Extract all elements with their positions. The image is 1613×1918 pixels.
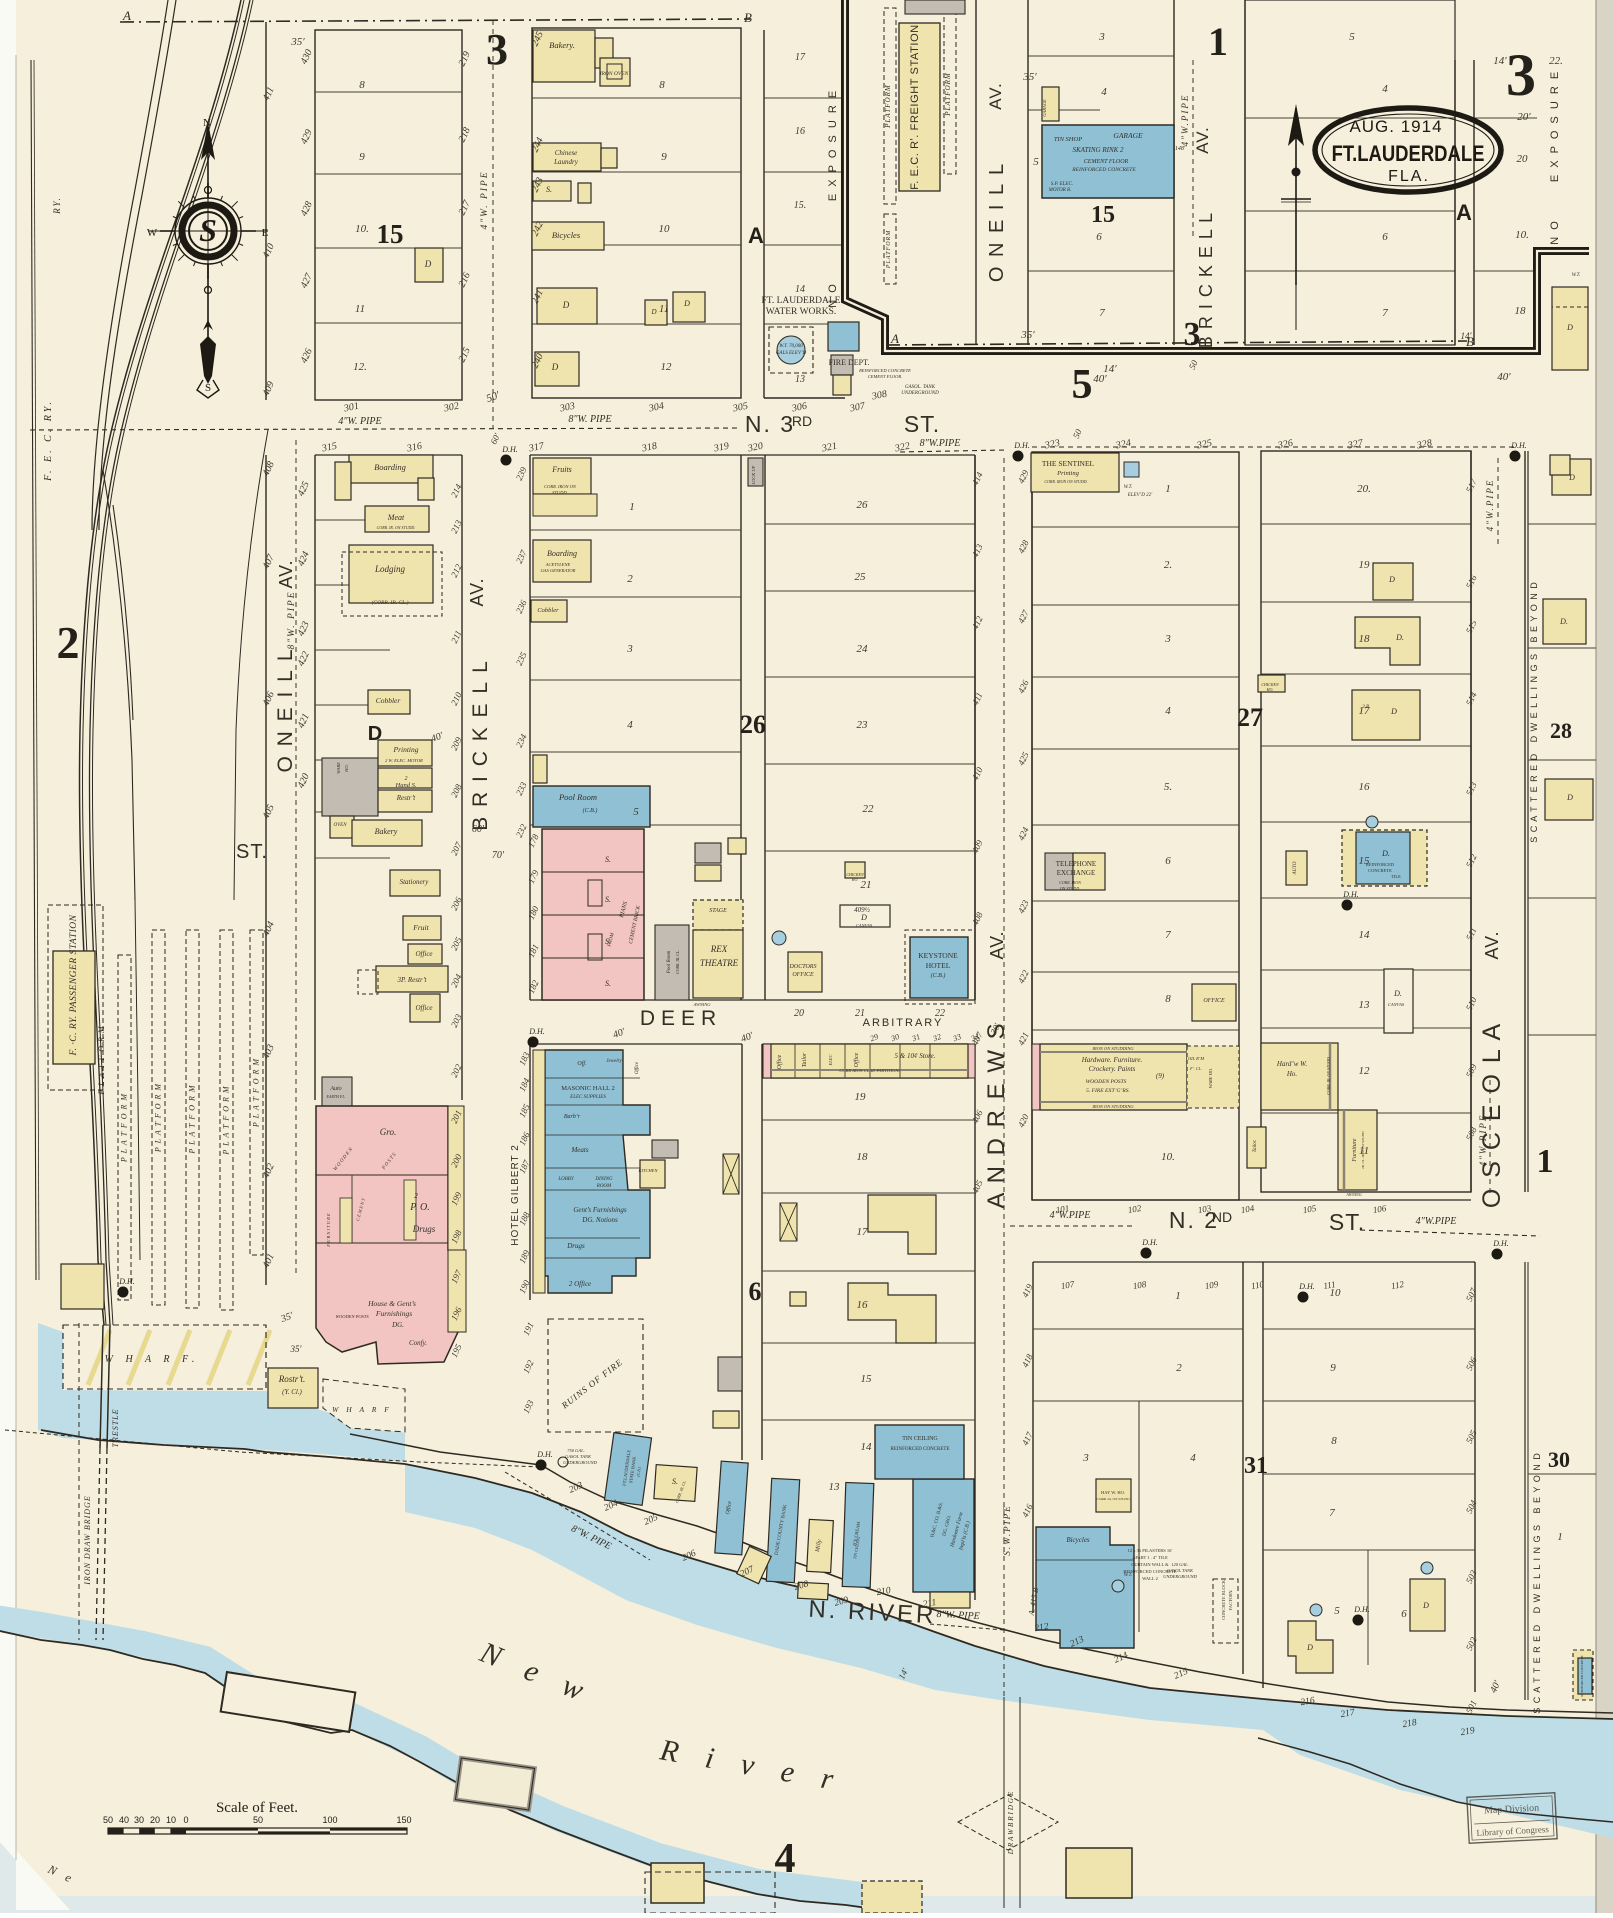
svg-text:Gro.: Gro. xyxy=(380,1127,396,1137)
svg-text:Drugs: Drugs xyxy=(566,1242,585,1250)
svg-text:Gent’s Furnishings: Gent’s Furnishings xyxy=(573,1206,627,1214)
svg-text:P L A T F O R M: P L A T F O R M xyxy=(154,1083,163,1154)
svg-text:10.: 10. xyxy=(1515,229,1529,241)
svg-text:10: 10 xyxy=(1330,1287,1342,1299)
svg-text:5: 5 xyxy=(1072,362,1093,408)
svg-text:3: 3 xyxy=(626,643,633,655)
svg-text:Drugs: Drugs xyxy=(412,1224,436,1234)
svg-text:D.H.: D.H. xyxy=(528,1027,545,1036)
svg-text:Tailor: Tailor xyxy=(802,1052,808,1067)
svg-text:F. E. C. RY.: F. E. C. RY. xyxy=(43,399,54,482)
svg-text:ST.: ST. xyxy=(904,411,940,437)
svg-text:10: 10 xyxy=(166,1815,176,1825)
svg-text:20′: 20′ xyxy=(1517,111,1531,123)
svg-text:FACTORY.: FACTORY. xyxy=(1228,1589,1233,1610)
svg-text:Hard’w W.: Hard’w W. xyxy=(1276,1060,1307,1068)
svg-text:D.H.: D.H. xyxy=(1510,441,1527,450)
svg-text:18: 18 xyxy=(1359,633,1371,645)
svg-text:GASOL TANK: GASOL TANK xyxy=(1167,1568,1194,1573)
svg-text:DG.: DG. xyxy=(391,1321,404,1329)
svg-text:PLATFORM: PLATFORM xyxy=(944,72,952,117)
svg-text:Office: Office xyxy=(415,1004,432,1012)
svg-text:E X P O S U R E: E X P O S U R E xyxy=(1549,70,1561,182)
svg-text:5: 5 xyxy=(1033,156,1039,168)
svg-text:8″W. PIPE: 8″W. PIPE xyxy=(287,590,297,649)
svg-text:Office: Office xyxy=(415,950,432,958)
svg-text:4: 4 xyxy=(1382,83,1388,95)
svg-text:D: D xyxy=(1566,793,1573,802)
svg-text:Bicycles: Bicycles xyxy=(1066,1536,1090,1544)
svg-text:F. ·C. RY. PASSENGER STATION: F. ·C. RY. PASSENGER STATION xyxy=(69,914,79,1056)
svg-text:CORR IRON CLAD PARTITION: CORR IRON CLAD PARTITIONS xyxy=(839,1068,901,1073)
svg-text:22.: 22. xyxy=(1549,55,1563,67)
svg-text:1: 1 xyxy=(1208,19,1228,64)
svg-text:ROOM: ROOM xyxy=(596,1184,612,1189)
svg-text:WARE: WARE xyxy=(336,762,341,774)
svg-text:13: 13 xyxy=(829,1481,841,1493)
svg-text:20: 20 xyxy=(1517,153,1529,165)
svg-text:D: D xyxy=(1390,707,1397,716)
svg-text:AUG. 1914: AUG. 1914 xyxy=(1349,117,1442,136)
svg-text:15: 15 xyxy=(377,219,404,249)
svg-text:D: D xyxy=(424,259,432,269)
svg-text:D.H.: D.H. xyxy=(1342,890,1359,899)
svg-text:RD: RD xyxy=(792,413,812,429)
svg-text:8: 8 xyxy=(1165,993,1171,1005)
svg-text:CEMENT FLOOR: CEMENT FLOOR xyxy=(1084,159,1129,165)
svg-text:Hand S.: Hand S. xyxy=(395,782,417,789)
svg-text:STUDD.: STUDD. xyxy=(552,490,568,495)
svg-text:6: 6 xyxy=(1401,1608,1407,1620)
svg-text:6: 6 xyxy=(749,1277,762,1306)
svg-text:Cobbler: Cobbler xyxy=(376,696,401,705)
svg-text:0: 0 xyxy=(183,1815,188,1825)
svg-text:Pool Room: Pool Room xyxy=(667,950,672,974)
svg-text:OFFICE: OFFICE xyxy=(1203,998,1225,1004)
svg-text:15: 15 xyxy=(861,1373,873,1385)
svg-text:Ho.: Ho. xyxy=(1286,1070,1298,1078)
svg-text:14: 14 xyxy=(795,284,805,295)
svg-text:GASOL. TANK: GASOL. TANK xyxy=(905,385,936,390)
svg-text:ST.: ST. xyxy=(1329,1209,1365,1235)
svg-text:2.: 2. xyxy=(1164,559,1172,571)
svg-text:P L A T F O R M: P L A T F O R M xyxy=(97,1025,106,1096)
svg-text:HAY W. HO.: HAY W. HO. xyxy=(1101,1490,1125,1495)
svg-text:40′: 40′ xyxy=(1497,371,1511,383)
svg-text:4: 4 xyxy=(1101,86,1107,98)
svg-text:ELEV’D 22′: ELEV’D 22′ xyxy=(1127,493,1153,498)
svg-text:2: 2 xyxy=(57,617,80,668)
svg-text:14: 14 xyxy=(861,1441,873,1453)
svg-text:B R I C K E L L: B R I C K E L L xyxy=(469,659,492,831)
svg-text:ACETYLENE: ACETYLENE xyxy=(545,562,571,567)
svg-text:REINFORCED: REINFORCED xyxy=(1366,862,1395,867)
svg-text:4: 4 xyxy=(1165,705,1171,717)
svg-text:A: A xyxy=(890,331,899,346)
svg-text:D.: D. xyxy=(1393,989,1402,998)
svg-text:HO.: HO. xyxy=(1266,687,1274,692)
svg-text:D.: D. xyxy=(1381,849,1390,858)
svg-text:Meat: Meat xyxy=(387,513,405,522)
svg-text:UNDERGROUND: UNDERGROUND xyxy=(1163,1574,1197,1579)
svg-text:Rostr’t.: Rostr’t. xyxy=(278,1374,306,1384)
svg-text:WALL 2: WALL 2 xyxy=(1142,1576,1158,1581)
svg-text:(9): (9) xyxy=(1156,1072,1165,1080)
svg-text:EARTH FL.: EARTH FL. xyxy=(325,1094,345,1099)
svg-text:D.H.: D.H. xyxy=(536,1450,553,1459)
svg-text:8: 8 xyxy=(1331,1435,1337,1447)
svg-text:CEMENT FLOOR.: CEMENT FLOOR. xyxy=(868,374,902,379)
svg-text:GASOL TANK: GASOL TANK xyxy=(565,1454,592,1459)
svg-text:35′: 35′ xyxy=(290,36,305,48)
svg-text:Bakery: Bakery xyxy=(375,827,398,836)
svg-text:(Y. Cl.): (Y. Cl.) xyxy=(282,1388,302,1396)
svg-text:D.H.: D.H. xyxy=(501,445,518,454)
svg-text:D.H.: D.H. xyxy=(1492,1239,1509,1248)
svg-text:CANVAS: CANVAS xyxy=(856,923,873,928)
svg-text:ARBITRARY: ARBITRARY xyxy=(863,1017,944,1029)
svg-text:11: 11 xyxy=(659,303,669,315)
svg-text:D.H.: D.H. xyxy=(1353,1605,1370,1614)
svg-text:FT.LAUDERDALE: FT.LAUDERDALE xyxy=(1332,143,1485,167)
svg-text:10: 10 xyxy=(659,223,671,235)
svg-text:HOTEL: HOTEL xyxy=(926,961,951,970)
svg-text:Off.: Off. xyxy=(577,1060,586,1067)
svg-text:31: 31 xyxy=(1244,1453,1268,1479)
svg-text:28: 28 xyxy=(1550,718,1572,743)
svg-text:D.: D. xyxy=(1395,633,1404,642)
svg-text:AV.: AV. xyxy=(986,82,1005,110)
svg-text:D: D xyxy=(1566,323,1573,332)
svg-text:FT. LAUDERDALE: FT. LAUDERDALE xyxy=(762,296,841,306)
svg-text:S.: S. xyxy=(605,895,611,904)
svg-text:P L A T F O R M: P L A T F O R M xyxy=(188,1084,197,1155)
svg-text:120 GAL.: 120 GAL. xyxy=(1171,1562,1189,1567)
svg-text:Printing: Printing xyxy=(1056,470,1079,477)
svg-text:P L A T F O R M: P L A T F O R M xyxy=(252,1058,261,1129)
svg-text:8: 8 xyxy=(659,79,665,91)
svg-text:Pool Room: Pool Room xyxy=(558,792,597,802)
svg-text:6: 6 xyxy=(1165,855,1171,867)
svg-text:TIN CEILING: TIN CEILING xyxy=(902,1436,938,1442)
svg-text:409½: 409½ xyxy=(854,906,871,914)
svg-text:4: 4 xyxy=(775,1836,796,1882)
svg-text:13: 13 xyxy=(1359,999,1371,1011)
svg-text:W.T.: W.T. xyxy=(1572,273,1581,278)
svg-text:D: D xyxy=(1422,1601,1429,1610)
svg-text:CORR. IRON ON: CORR. IRON ON xyxy=(544,484,577,489)
svg-text:148′: 148′ xyxy=(1175,145,1186,152)
svg-text:Lodging: Lodging xyxy=(374,564,406,574)
svg-text:3: 3 xyxy=(486,25,508,74)
svg-text:DEER: DEER xyxy=(640,1007,722,1030)
svg-text:RY.: RY. xyxy=(52,196,62,215)
svg-text:W.T.: W.T. xyxy=(1124,1573,1133,1578)
svg-text:CONCRETE: CONCRETE xyxy=(1368,868,1392,873)
svg-text:AV.: AV. xyxy=(1193,126,1212,154)
svg-text:DRAWBRIDGE: DRAWBRIDGE xyxy=(1007,1790,1015,1855)
svg-text:WOODEN POSTS: WOODEN POSTS xyxy=(335,1314,369,1319)
svg-text:OIL R’M: OIL R’M xyxy=(1188,1056,1205,1061)
svg-text:P L A T F O R M: P L A T F O R M xyxy=(222,1085,231,1156)
svg-text:D: D xyxy=(1306,1643,1313,1652)
svg-text:6: 6 xyxy=(1096,231,1102,243)
svg-text:1: 1 xyxy=(1175,1290,1181,1302)
svg-text:CANVAS: CANVAS xyxy=(1388,1002,1405,1007)
svg-text:AWNING: AWNING xyxy=(1345,1192,1361,1197)
svg-text:100: 100 xyxy=(322,1815,337,1825)
svg-text:Stationery: Stationery xyxy=(400,878,430,886)
svg-text:WATER WORKS.: WATER WORKS. xyxy=(766,307,837,317)
svg-text:D: D xyxy=(860,913,867,922)
svg-text:O N E I L L: O N E I L L xyxy=(986,162,1008,282)
svg-text:S.: S. xyxy=(672,1477,678,1486)
svg-text:W H A R F.: W H A R F. xyxy=(105,1354,200,1365)
svg-text:8: 8 xyxy=(359,79,365,91)
svg-text:W: W xyxy=(147,227,158,239)
svg-text:1: 1 xyxy=(1165,483,1171,495)
svg-text:3P. Restr’t: 3P. Restr’t xyxy=(397,976,428,984)
svg-text:30: 30 xyxy=(134,1815,144,1825)
svg-text:DOCTORS: DOCTORS xyxy=(789,964,817,970)
svg-text:P L A T F O R M: P L A T F O R M xyxy=(120,1093,129,1164)
svg-text:D: D xyxy=(650,308,656,316)
svg-text:TRESTLE: TRESTLE xyxy=(111,1408,120,1447)
svg-text:S C A T T E R E D D W E L L: S C A T T E R E D D W E L L I N G S B E … xyxy=(1532,1452,1542,1713)
svg-text:N O: N O xyxy=(1549,219,1561,245)
svg-text:3: 3 xyxy=(1184,316,1201,353)
svg-text:AWNING: AWNING xyxy=(692,1002,711,1007)
svg-text:4″W.PIPE: 4″W.PIPE xyxy=(1485,479,1495,532)
svg-text:15: 15 xyxy=(1091,202,1115,228)
svg-text:GALS ELEV’D: GALS ELEV’D xyxy=(776,351,807,356)
svg-text:14: 14 xyxy=(1359,929,1371,941)
svg-text:7: 7 xyxy=(1382,307,1388,319)
svg-text:Chinese: Chinese xyxy=(555,149,578,157)
svg-text:F’. CL.: F’. CL. xyxy=(1189,1066,1202,1071)
svg-text:CORR. IR. ON STUDD.: CORR. IR. ON STUDD. xyxy=(377,525,416,530)
svg-text:House & Gent’s: House & Gent’s xyxy=(367,1299,416,1308)
svg-text:Bicycles: Bicycles xyxy=(552,230,581,240)
svg-text:HOTEL GILBERT 2: HOTEL GILBERT 2 xyxy=(510,1144,521,1246)
svg-text:D: D xyxy=(1388,575,1395,584)
svg-text:D.H.: D.H. xyxy=(1141,1238,1158,1247)
svg-text:Barb’r: Barb’r xyxy=(564,1114,581,1120)
svg-text:F. E.C. Rʹ. FREIGHT STATION: F. E.C. Rʹ. FREIGHT STATION xyxy=(909,24,921,190)
svg-text:Jewelry: Jewelry xyxy=(606,1059,622,1064)
svg-text:(C.B.): (C.B.) xyxy=(931,972,946,979)
svg-text:7: 7 xyxy=(1099,307,1105,319)
svg-text:4″W. PIPE: 4″W. PIPE xyxy=(338,416,381,427)
svg-text:Laundry: Laundry xyxy=(553,158,579,166)
svg-text:REINFORCED CONCRETE: REINFORCED CONCRETE xyxy=(1071,167,1136,173)
svg-text:14′: 14′ xyxy=(1493,55,1507,67)
svg-text:MASONIC HALL 2: MASONIC HALL 2 xyxy=(561,1085,615,1092)
svg-text:Boarding: Boarding xyxy=(547,549,577,558)
svg-text:IRON OVEN: IRON OVEN xyxy=(599,71,629,77)
svg-text:B: B xyxy=(744,10,752,25)
svg-text:LOBBY: LOBBY xyxy=(557,1177,575,1182)
svg-text:8″W. PIPE: 8″W. PIPE xyxy=(936,1609,980,1622)
svg-text:1: 1 xyxy=(1537,1143,1554,1180)
svg-text:LOCK UP: LOCK UP xyxy=(751,465,756,485)
svg-text:35′: 35′ xyxy=(1022,71,1037,83)
svg-text:2: 2 xyxy=(627,573,633,585)
svg-text:50: 50 xyxy=(253,1815,263,1825)
svg-text:IRON ON STUDDING: IRON ON STUDDING xyxy=(1091,1046,1134,1051)
svg-text:35′: 35′ xyxy=(290,1344,303,1354)
svg-text:1: 1 xyxy=(1557,1531,1563,1543)
svg-text:REX: REX xyxy=(710,944,728,954)
svg-text:24: 24 xyxy=(857,643,869,655)
svg-text:60′: 60′ xyxy=(472,824,485,835)
svg-text:CORR. IR. CL.: CORR. IR. CL. xyxy=(675,950,680,974)
svg-text:FIRE DEPT.: FIRE DEPT. xyxy=(829,358,870,367)
svg-text:8″W.PIPE: 8″W.PIPE xyxy=(920,438,961,449)
svg-text:6: 6 xyxy=(1382,231,1388,243)
svg-text:17: 17 xyxy=(1359,705,1371,717)
svg-text:TELEPHONE: TELEPHONE xyxy=(1056,860,1096,868)
svg-text:Boarding: Boarding xyxy=(374,462,406,472)
svg-text:9: 9 xyxy=(661,151,667,163)
svg-text:Tailor.: Tailor. xyxy=(1253,1140,1258,1153)
svg-text:19: 19 xyxy=(855,1091,867,1103)
svg-text:26: 26 xyxy=(740,710,766,739)
svg-text:D.H.: D.H. xyxy=(118,1277,135,1286)
svg-text:25: 25 xyxy=(855,571,867,583)
svg-text:DINING: DINING xyxy=(594,1177,613,1182)
svg-text:CORR. IA. ON STUDD: CORR. IA. ON STUDD xyxy=(1097,1497,1130,1501)
svg-text:12 x 36 PILASTERS 16′: 12 x 36 PILASTERS 16′ xyxy=(1128,1548,1173,1553)
svg-text:750 GAL.: 750 GAL. xyxy=(567,1448,585,1453)
svg-text:CORR. IR. ON STUDD: CORR. IR. ON STUDD xyxy=(1326,1057,1331,1095)
svg-text:CORR. IRON: CORR. IRON xyxy=(1059,880,1081,885)
svg-text:21: 21 xyxy=(861,879,872,891)
svg-text:7: 7 xyxy=(1165,929,1171,941)
svg-text:14′: 14′ xyxy=(1103,363,1117,375)
svg-text:12: 12 xyxy=(1359,1065,1371,1077)
svg-text:27: 27 xyxy=(1237,703,1263,732)
svg-text:PLATFORM: PLATFORM xyxy=(886,230,892,269)
svg-text:ON STUDD.: ON STUDD. xyxy=(1060,886,1080,891)
svg-text:S.P. ELEC.: S.P. ELEC. xyxy=(1051,182,1073,187)
svg-text:D: D xyxy=(1568,473,1575,482)
svg-text:S.: S. xyxy=(605,855,611,864)
svg-text:Office: Office xyxy=(635,1061,640,1074)
svg-text:TILE: TILE xyxy=(1391,874,1401,879)
svg-text:OFFICE: OFFICE xyxy=(792,972,814,978)
svg-text:Hardware. Furniture.: Hardware. Furniture. xyxy=(1081,1056,1143,1064)
svg-text:DG. Notions: DG. Notions xyxy=(581,1216,618,1224)
svg-text:EXCHANGE: EXCHANGE xyxy=(1057,869,1096,877)
svg-text:4″W.PIPE: 4″W.PIPE xyxy=(1416,1216,1457,1227)
svg-text:AV.: AV. xyxy=(276,559,296,588)
svg-text:Office: Office xyxy=(853,1052,860,1067)
svg-text:12: 12 xyxy=(661,361,673,373)
svg-text:A: A xyxy=(748,223,764,248)
svg-text:D: D xyxy=(562,300,570,310)
svg-text:16: 16 xyxy=(857,1299,869,1311)
svg-text:IRON DRAW BRIDGE: IRON DRAW BRIDGE xyxy=(83,1495,92,1585)
svg-text:HO.: HO. xyxy=(851,877,859,882)
svg-text:Office: Office xyxy=(776,1054,783,1069)
svg-text:Fruits: Fruits xyxy=(551,465,572,474)
svg-text:O N E I L L: O N E I L L xyxy=(274,647,297,772)
svg-text:IRON ON STUDDING: IRON ON STUDDING xyxy=(1091,1104,1134,1109)
svg-text:ND: ND xyxy=(1212,1209,1232,1225)
svg-text:AV.: AV. xyxy=(467,577,487,606)
svg-text:S.W.PIPE: S.W.PIPE xyxy=(1002,1504,1012,1555)
svg-text:WOODEN POSTS: WOODEN POSTS xyxy=(1086,1079,1127,1085)
svg-text:A: A xyxy=(1456,200,1472,225)
svg-text:N. 3: N. 3 xyxy=(745,411,795,437)
svg-text:W.T. 70,000: W.T. 70,000 xyxy=(779,344,803,349)
svg-text:PLATFORM: PLATFORM xyxy=(884,84,892,129)
svg-text:WARE HO.: WARE HO. xyxy=(1208,1068,1213,1088)
svg-text:10.: 10. xyxy=(355,223,369,235)
svg-text:30: 30 xyxy=(1548,1447,1570,1472)
svg-text:11: 11 xyxy=(1359,1145,1369,1157)
svg-text:4″W. PIPE: 4″W. PIPE xyxy=(480,170,490,229)
svg-text:FLA.: FLA. xyxy=(1388,168,1430,185)
svg-text:GARAGE: GARAGE xyxy=(1113,131,1143,140)
svg-text:D: D xyxy=(368,723,382,745)
svg-text:2 W. ELEC. MOTOR: 2 W. ELEC. MOTOR xyxy=(385,758,423,763)
svg-text:3: 3 xyxy=(1506,42,1536,108)
svg-text:13: 13 xyxy=(795,374,805,385)
svg-text:7: 7 xyxy=(1329,1507,1335,1519)
svg-text:Scale of Feet.: Scale of Feet. xyxy=(216,1800,298,1816)
svg-text:17: 17 xyxy=(795,52,806,63)
svg-text:REINFORCED CONCRETE: REINFORCED CONCRETE xyxy=(858,368,911,373)
svg-text:A N D R E W S: A N D R E W S xyxy=(983,1021,1010,1208)
svg-text:Cobbler: Cobbler xyxy=(537,607,559,614)
svg-text:D: D xyxy=(551,362,559,372)
svg-text:70′: 70′ xyxy=(492,850,505,861)
svg-text:9: 9 xyxy=(359,151,365,163)
svg-text:20: 20 xyxy=(794,1008,804,1019)
svg-text:1: 1 xyxy=(629,501,635,513)
svg-text:21: 21 xyxy=(855,1008,865,1019)
svg-text:15.: 15. xyxy=(794,200,807,211)
svg-text:SKATING RINK 2: SKATING RINK 2 xyxy=(1072,146,1124,154)
svg-text:3: 3 xyxy=(1082,1452,1089,1464)
svg-text:D.H.: D.H. xyxy=(1013,441,1030,450)
svg-text:50: 50 xyxy=(103,1815,113,1825)
svg-text:THE SENTINEL: THE SENTINEL xyxy=(1042,459,1095,468)
svg-text:16: 16 xyxy=(1359,781,1371,793)
svg-text:CURTAIN WALL &: CURTAIN WALL & xyxy=(1131,1562,1169,1567)
svg-text:Bakery.: Bakery. xyxy=(549,40,575,50)
svg-text:E: E xyxy=(262,227,269,239)
svg-text:REINFORCED CONCRETE: REINFORCED CONCRETE xyxy=(890,1447,949,1452)
svg-text:D: D xyxy=(683,299,690,308)
svg-text:GARAGE: GARAGE xyxy=(1042,99,1047,117)
svg-text:19: 19 xyxy=(1359,559,1371,571)
svg-text:Restr’t: Restr’t xyxy=(396,794,417,802)
svg-text:MOTOR B.: MOTOR B. xyxy=(1048,188,1072,193)
svg-text:40: 40 xyxy=(119,1815,129,1825)
svg-text:5 & 10¢ Store.: 5 & 10¢ Store. xyxy=(895,1052,936,1060)
svg-text:20: 20 xyxy=(150,1815,160,1825)
svg-text:4: 4 xyxy=(1190,1452,1196,1464)
svg-text:D.H.: D.H. xyxy=(1298,1282,1315,1291)
svg-text:ELEC SUPPLIES: ELEC SUPPLIES xyxy=(569,1095,606,1100)
svg-text:S C A T T E R E D D W E L L: S C A T T E R E D D W E L L I N G S B E … xyxy=(1529,581,1539,842)
svg-text:Auto: Auto xyxy=(329,1086,341,1092)
svg-text:APART 1 . 4″ TILE: APART 1 . 4″ TILE xyxy=(1132,1555,1168,1560)
svg-text:REINFORCED CONCRETE: REINFORCED CONCRETE xyxy=(1580,1655,1584,1696)
